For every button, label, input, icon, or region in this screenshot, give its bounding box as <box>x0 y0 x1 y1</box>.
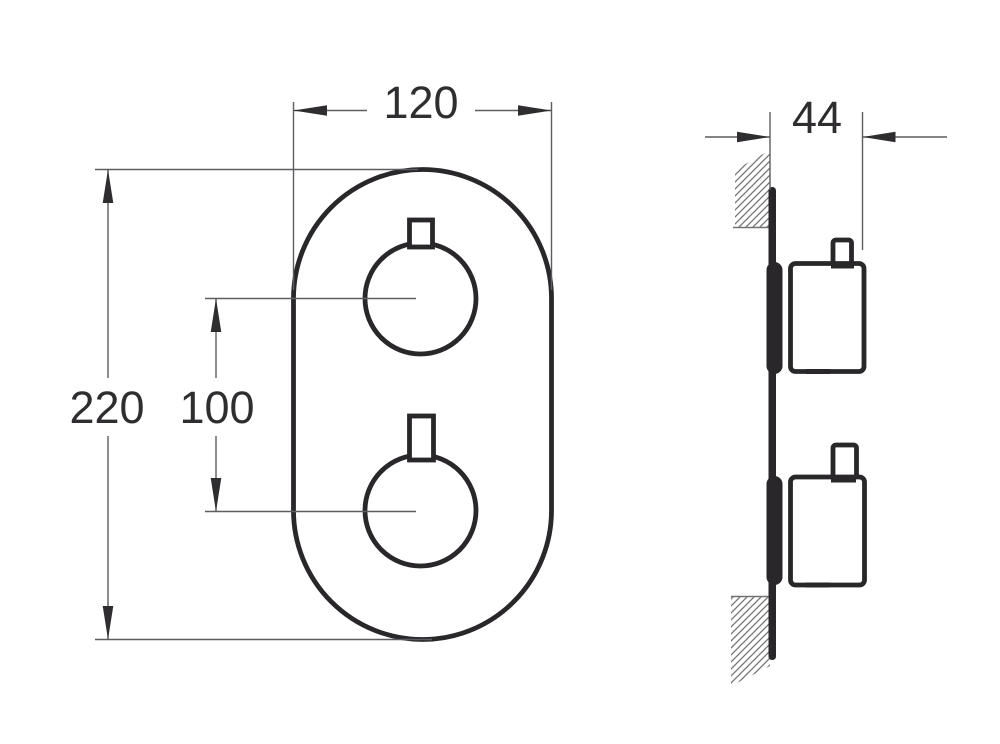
side-view <box>731 150 865 686</box>
dim-label-depth: 44 <box>792 92 842 143</box>
drawing-canvas: 120 220 100 <box>0 0 1000 744</box>
arrowhead-left-icon <box>863 132 896 143</box>
arrowhead-down-icon <box>103 606 114 640</box>
dim-label-plate-width: 120 <box>383 77 458 128</box>
temperature-handle-base-profile <box>767 262 783 374</box>
volume-handle-base-profile <box>767 476 783 585</box>
arrowhead-down-icon <box>211 478 222 512</box>
arrowhead-up-icon <box>211 299 222 333</box>
volume-handle-side <box>791 477 865 585</box>
arrowhead-up-icon <box>103 170 114 204</box>
dim-label-handle-spacing: 100 <box>179 382 254 433</box>
dim-label-plate-height: 220 <box>69 382 144 433</box>
volume-handle-lever-front <box>410 416 434 460</box>
technical-drawing: 120 220 100 <box>0 0 1000 744</box>
wall-hatch-top <box>735 150 770 227</box>
arrowhead-right-icon <box>737 132 770 143</box>
arrowhead-left-icon <box>294 105 328 116</box>
front-view <box>294 170 552 640</box>
temperature-handle-side <box>791 264 865 372</box>
wall-hatch-bottom <box>731 597 770 686</box>
faceplate-profile <box>769 187 777 660</box>
arrowhead-right-icon <box>518 105 552 116</box>
volume-handle-front <box>365 455 476 566</box>
temperature-handle-lever-front <box>410 220 433 247</box>
